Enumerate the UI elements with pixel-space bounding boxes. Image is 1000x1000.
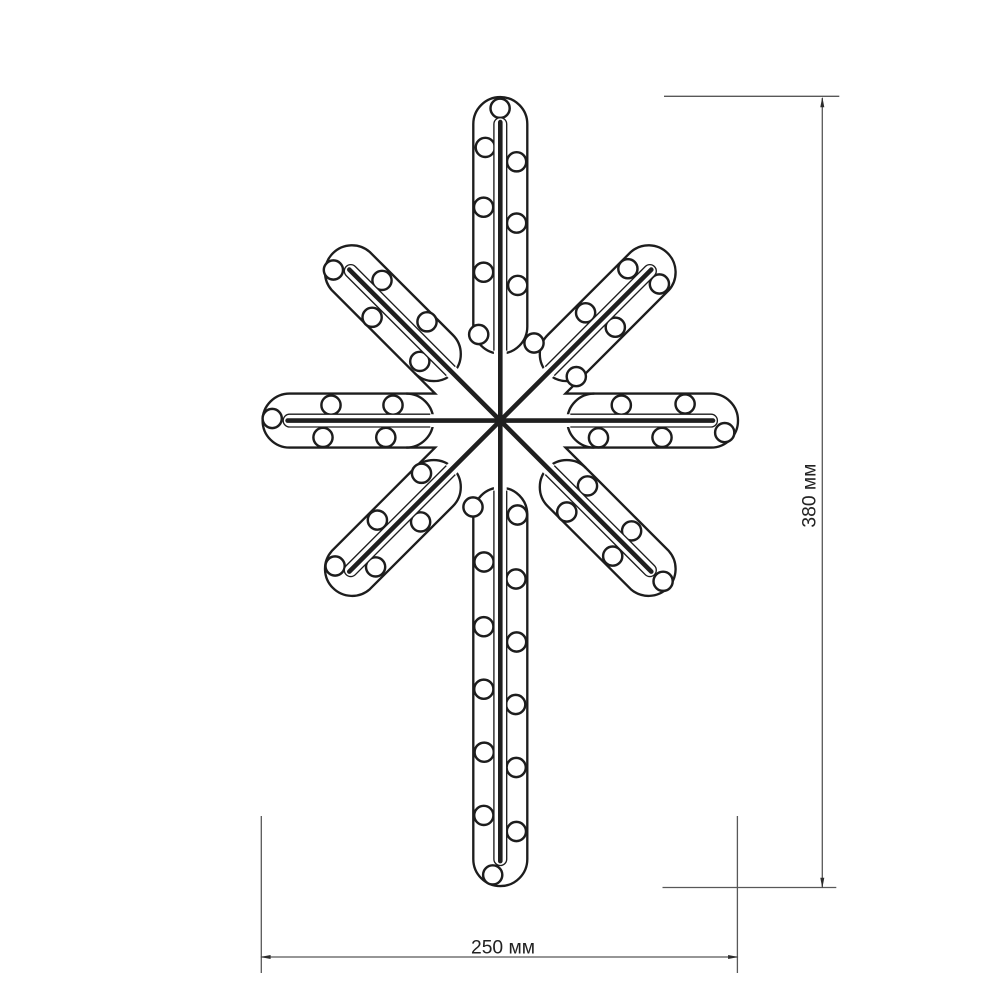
- svg-text:380 мм: 380 мм: [800, 464, 821, 528]
- svg-text:250 мм: 250 мм: [471, 938, 535, 959]
